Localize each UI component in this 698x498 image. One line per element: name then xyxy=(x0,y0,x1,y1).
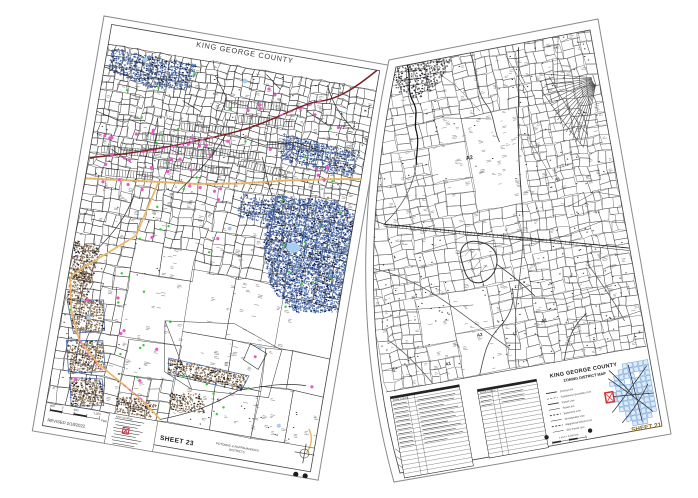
svg-text:A2: A2 xyxy=(466,155,474,162)
